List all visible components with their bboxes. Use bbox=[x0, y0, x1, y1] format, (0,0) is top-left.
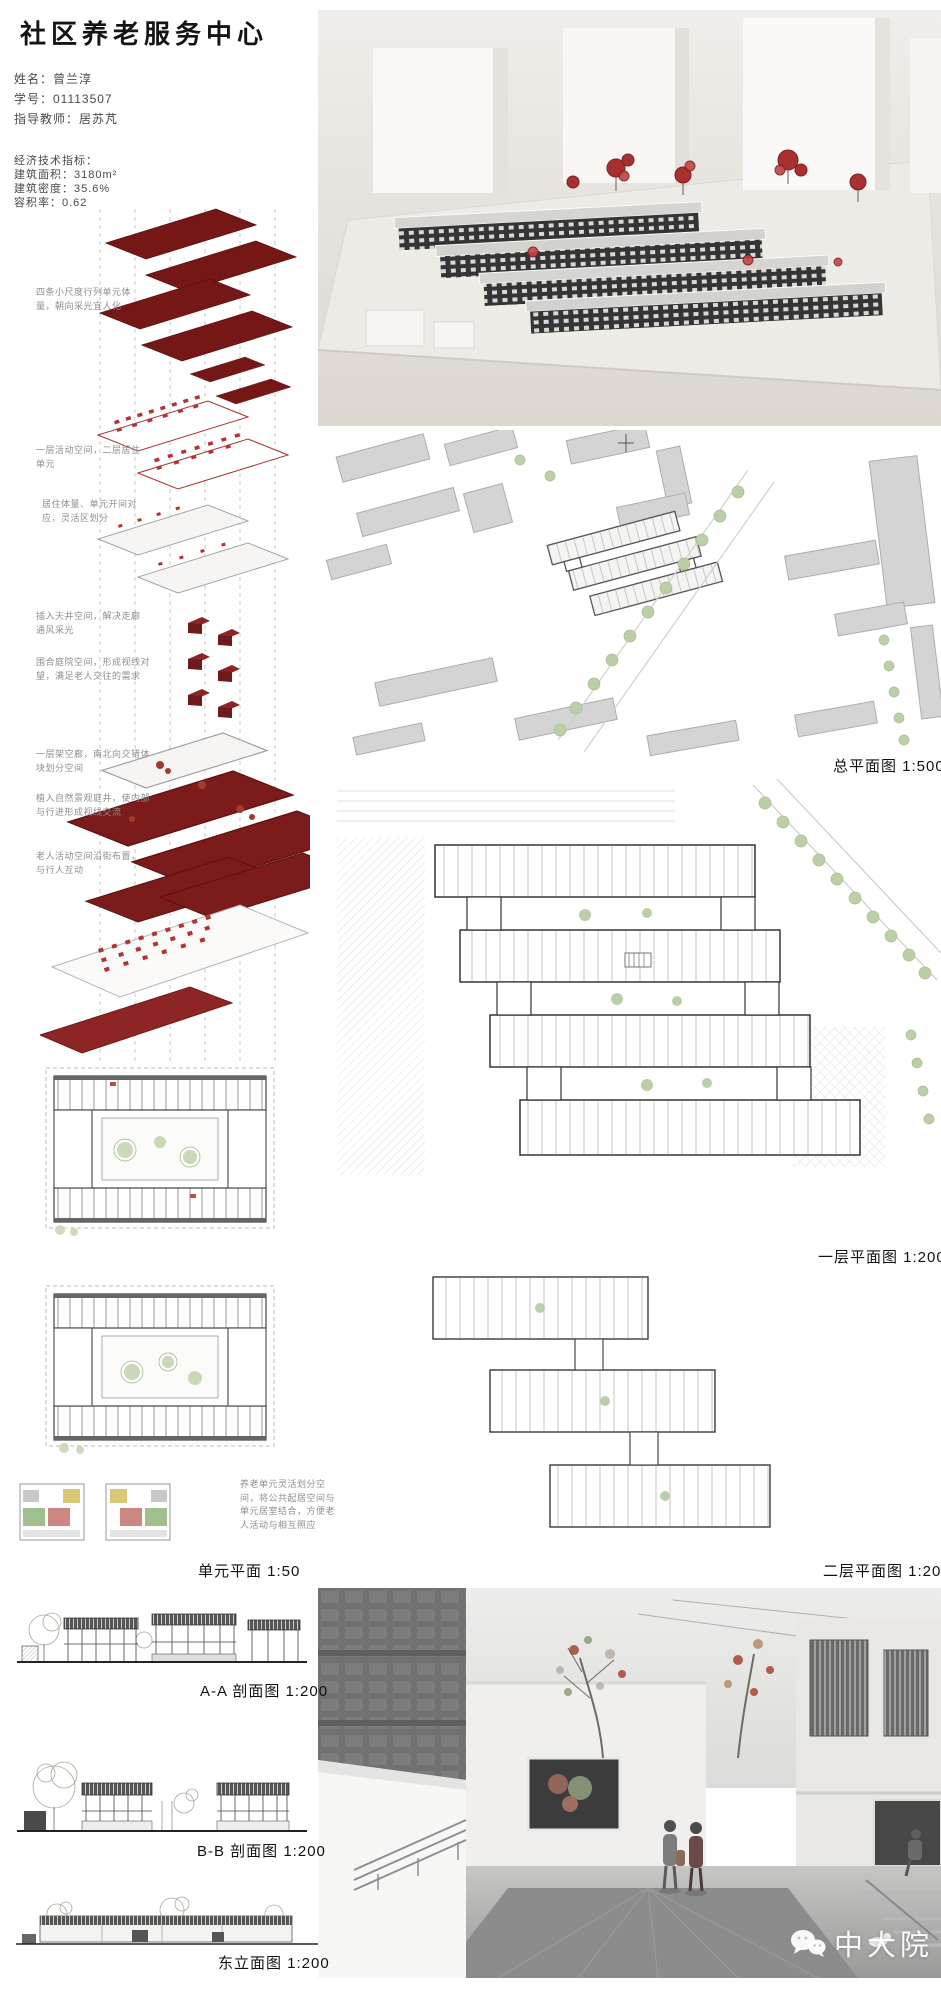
site-plan-label: 总平面图 1:500 bbox=[833, 755, 941, 776]
floor2-plan-label: 二层平面图 1:200 bbox=[823, 1560, 941, 1581]
student-id: 学号：01113507 bbox=[14, 90, 113, 107]
presentation-board: 社区养老服务中心 姓名：曾兰淳 学号：01113507 指导教师：居苏芃 经济技… bbox=[0, 0, 941, 1996]
model-photo-image bbox=[318, 10, 941, 426]
section-aa-figure bbox=[12, 1598, 312, 1676]
courtyard-plan-1 bbox=[40, 1062, 280, 1237]
floor1-plan-figure bbox=[325, 775, 941, 1255]
floor1-plan-drawing bbox=[325, 775, 941, 1255]
axon-annotation: 一层架空廊，南北向交错体块划分空间 bbox=[36, 748, 154, 775]
east-elevation-figure bbox=[12, 1896, 322, 1954]
axon-annotation: 一层活动空间，二层居住单元 bbox=[36, 444, 148, 471]
axon-annotation: 植入自然景观庭井，使内部与行进形成视线交流 bbox=[36, 792, 156, 819]
student-name: 姓名：曾兰淳 bbox=[14, 70, 92, 87]
axon-annotation: 老人活动空间沿街布置，与行人互动 bbox=[36, 850, 148, 877]
page-title: 社区养老服务中心 bbox=[20, 14, 268, 51]
section-aa-label: A-A 剖面图 1:200 bbox=[200, 1680, 328, 1701]
logo-text: 中大院 bbox=[834, 1922, 933, 1964]
watermark: 中大院 bbox=[790, 1922, 933, 1964]
courtyard-plan-2 bbox=[40, 1280, 280, 1455]
floor2-plan-figure bbox=[425, 1265, 775, 1560]
axon-annotation: 插入天井空间，解决走廊通风采光 bbox=[36, 610, 148, 637]
site-plan-drawing bbox=[318, 430, 941, 760]
advisor: 指导教师：居苏芃 bbox=[14, 110, 118, 127]
axon-annotation: 围合庭院空间，形成视线对望，满足老人交往的需求 bbox=[36, 656, 154, 683]
rendering-photo: 中大院 bbox=[318, 1588, 941, 1978]
east-elevation-label: 东立面图 1:200 bbox=[218, 1952, 330, 1973]
wechat-icon bbox=[790, 1928, 826, 1958]
axon-annotation: 居住体量、单元开间对应，灵活区划分 bbox=[42, 498, 154, 525]
section-bb-label: B-B 剖面图 1:200 bbox=[197, 1840, 326, 1861]
unit-note: 养老单元灵活划分空间，将公共起居空间与单元居室结合，方便老人活动与相互照应 bbox=[240, 1478, 335, 1532]
site-plan-figure bbox=[318, 430, 941, 760]
model-photo bbox=[318, 10, 941, 426]
unit-plan-label: 单元平面 1:50 bbox=[198, 1560, 300, 1581]
axon-annotation: 四条小尺度行列单元体量，朝向采光宜人化 bbox=[36, 286, 140, 313]
unit-diagram bbox=[16, 1478, 181, 1548]
section-bb-figure bbox=[12, 1745, 312, 1845]
floor1-plan-label: 一层平面图 1:200 bbox=[818, 1246, 941, 1267]
